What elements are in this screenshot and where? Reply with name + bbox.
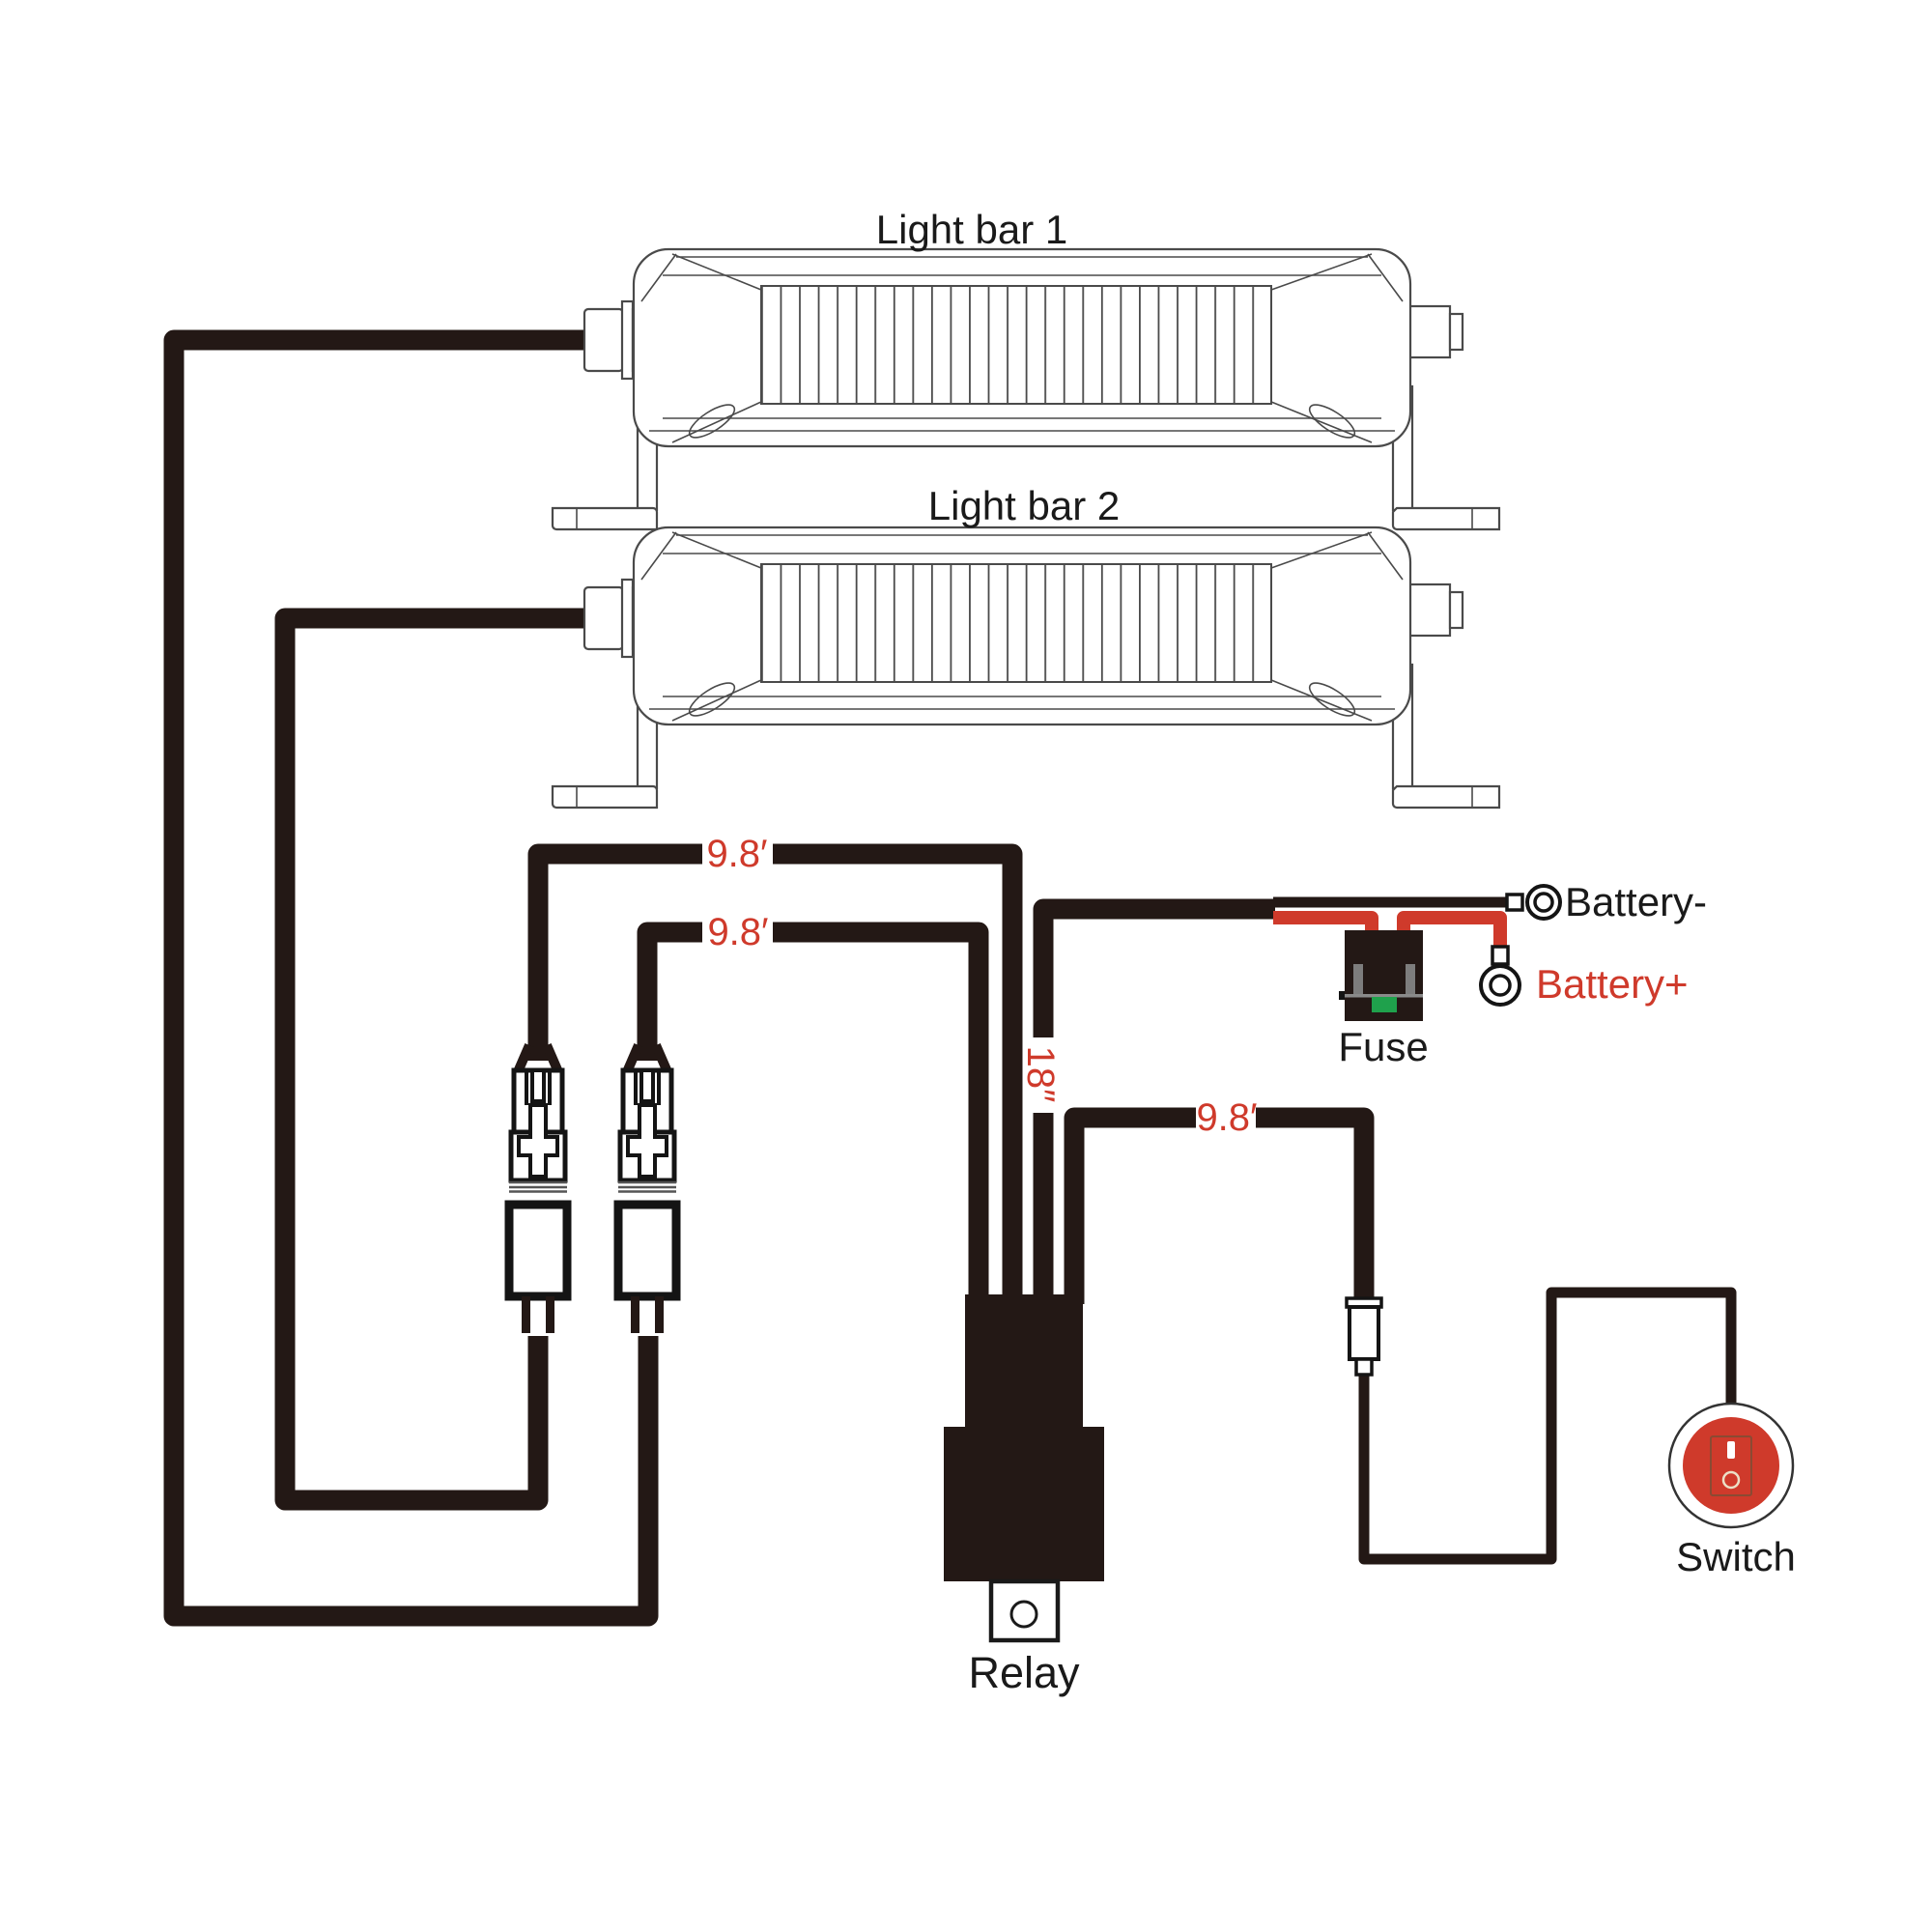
switch-on-mark	[1727, 1441, 1735, 1459]
fuse-holder	[1339, 930, 1423, 1021]
light-bar-1-label: Light bar 1	[876, 207, 1067, 252]
rocker-switch	[1669, 1404, 1793, 1527]
connector-pair-1	[509, 1045, 567, 1333]
wire-lightbar1-lead	[174, 340, 648, 1616]
light-bar-2-label: Light bar 2	[928, 483, 1120, 528]
switch-button	[1683, 1417, 1779, 1514]
dim-relay-to-battery: 18″	[1019, 1046, 1062, 1103]
wire-switch-tail	[1364, 1293, 1731, 1559]
battery-positive-label: Battery+	[1536, 961, 1689, 1007]
wire-relay-output-2	[647, 932, 979, 1304]
wire-relay-output-1	[538, 854, 1012, 1304]
fuse-label: Fuse	[1338, 1024, 1428, 1069]
dim-lightbar1-lead: 9.8′	[706, 833, 767, 875]
dim-lightbar2-lead: 9.8′	[707, 911, 768, 953]
battery-negative-label: Battery-	[1565, 879, 1707, 924]
switch-lead-connector	[1347, 1298, 1381, 1375]
relay-label: Relay	[968, 1648, 1080, 1697]
diagram-svg: Light bar 1 Light bar 2 9.8′ 9.8′ 18″ 9.…	[0, 0, 1932, 1932]
light-bar-2	[553, 527, 1499, 808]
ring-terminal-negative	[1507, 886, 1560, 919]
wire-relay-to-switch	[1074, 1118, 1364, 1304]
wiring-diagram: Light bar 1 Light bar 2 9.8′ 9.8′ 18″ 9.…	[0, 0, 1932, 1932]
connector-pair-2	[618, 1045, 676, 1333]
switch-label: Switch	[1676, 1534, 1796, 1579]
dim-switch-lead: 9.8′	[1196, 1096, 1257, 1139]
ring-terminal-positive	[1481, 947, 1520, 1005]
relay	[944, 1294, 1104, 1640]
relay-tab-hole	[1011, 1602, 1037, 1627]
fuse-element	[1372, 997, 1397, 1012]
